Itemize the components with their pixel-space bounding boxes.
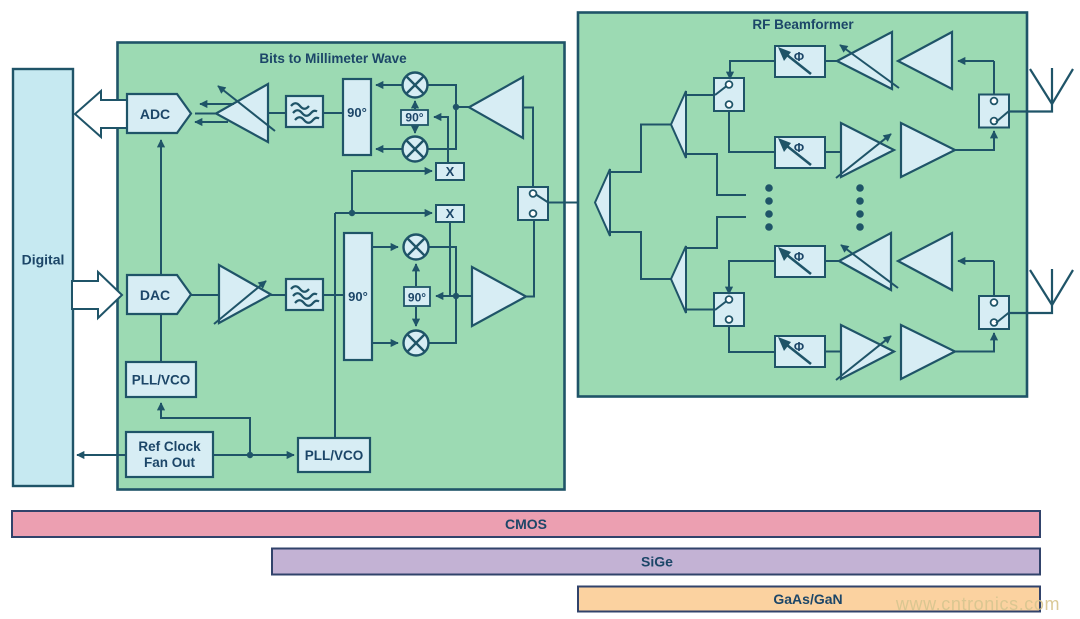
svg-text:DAC: DAC (140, 287, 170, 303)
svg-text:www.cntronics.com: www.cntronics.com (895, 594, 1060, 614)
svg-text:90°: 90° (408, 291, 426, 305)
svg-text:Ref Clock: Ref Clock (138, 439, 201, 454)
svg-text:CMOS: CMOS (505, 516, 547, 532)
svg-text:X: X (446, 164, 455, 179)
svg-text:90°: 90° (405, 111, 423, 125)
svg-text:Fan Out: Fan Out (144, 455, 195, 470)
svg-text:Bits to Millimeter Wave: Bits to Millimeter Wave (259, 51, 407, 66)
svg-text:Digital: Digital (22, 252, 65, 268)
svg-text:PLL/VCO: PLL/VCO (305, 448, 364, 463)
svg-text:PLL/VCO: PLL/VCO (132, 373, 191, 388)
svg-text:X: X (446, 206, 455, 221)
svg-text:GaAs/GaN: GaAs/GaN (773, 591, 842, 607)
svg-text:90°: 90° (348, 289, 368, 304)
svg-text:RF Beamformer: RF Beamformer (752, 17, 854, 32)
svg-text:ADC: ADC (140, 106, 170, 122)
svg-text:90°: 90° (347, 105, 367, 120)
svg-text:SiGe: SiGe (641, 554, 673, 570)
